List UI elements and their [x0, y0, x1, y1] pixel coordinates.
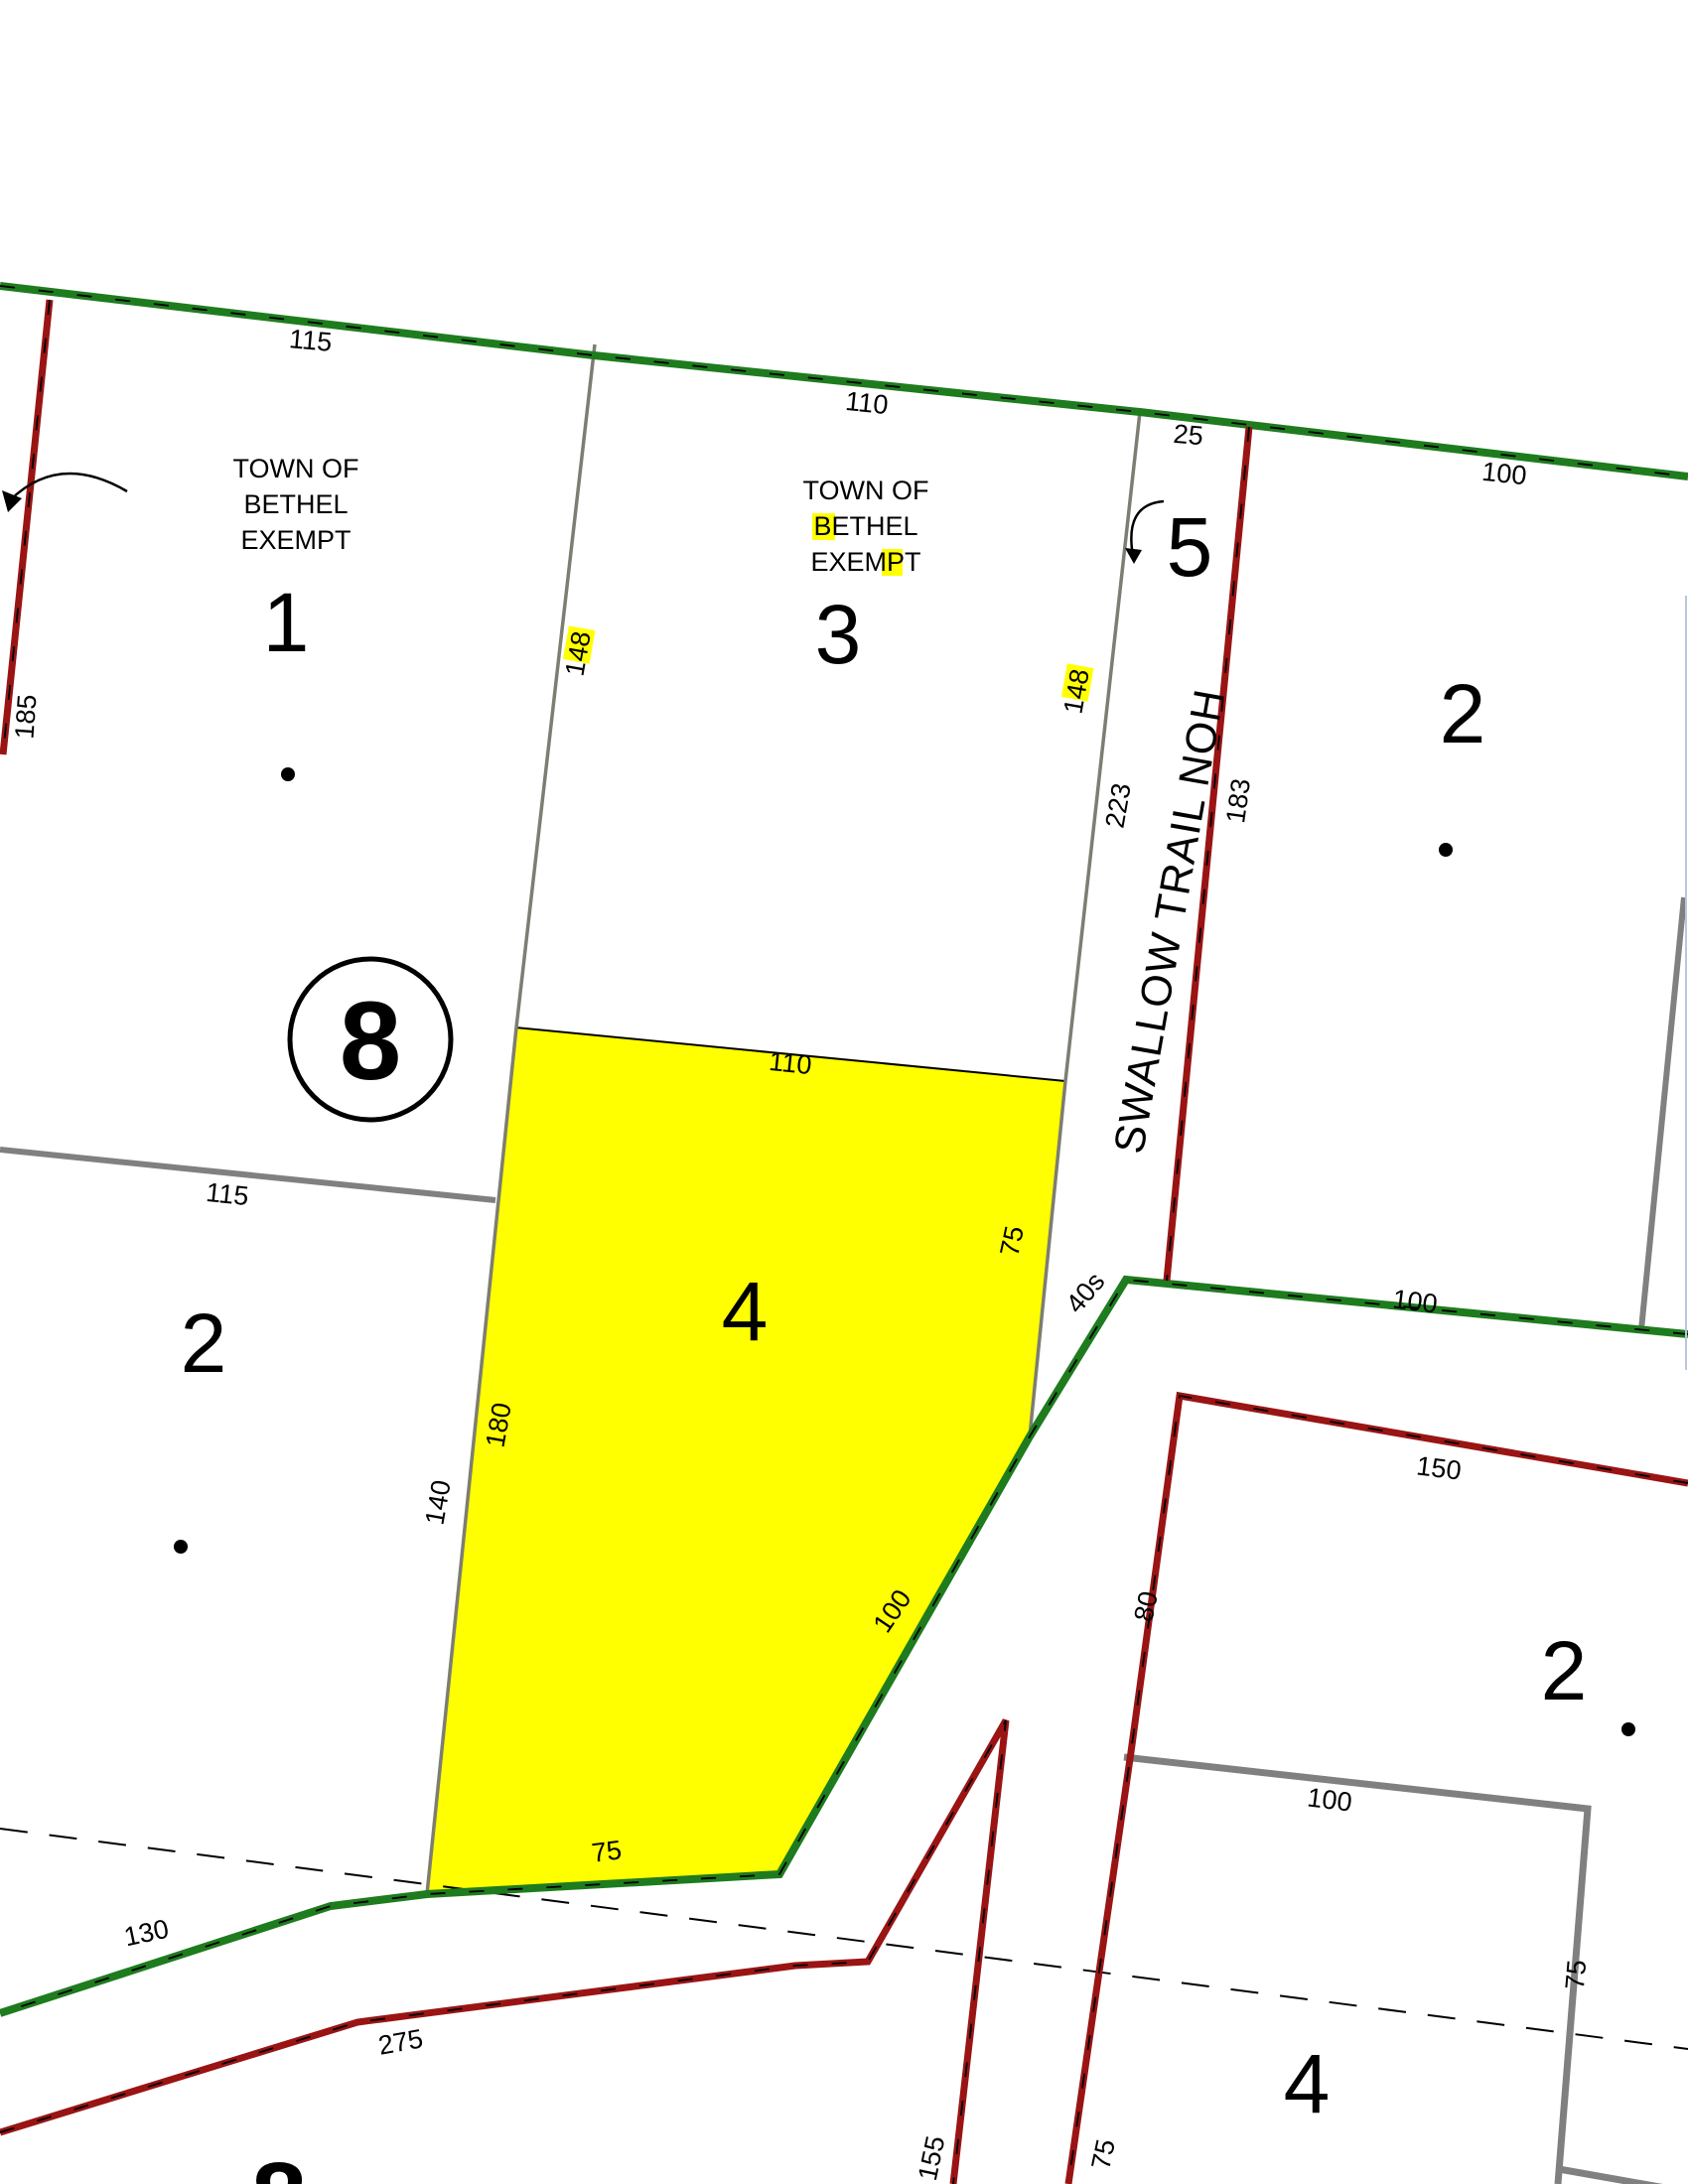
parcel-2-left-number: 2 — [181, 1297, 227, 1390]
dim-110-selected: 110 — [768, 1046, 813, 1080]
block-number: 8 — [340, 979, 401, 1103]
dim-185: 185 — [9, 693, 42, 740]
parcel-map-stage: 8 TOWN OF BETHEL EXEMPT 1 TOWN OF BETHEL… — [0, 0, 1688, 2184]
dim-183: 183 — [1220, 776, 1256, 825]
dim-80: 80 — [1128, 1588, 1164, 1624]
parcel-1-number: 1 — [263, 576, 310, 669]
parcel-2-right-number: 2 — [1541, 1624, 1588, 1717]
parcel-8-bottom-number: 8 — [251, 2142, 307, 2184]
parcel-3-owner-line2: BETHEL — [813, 511, 917, 541]
dim-75-selected-bottom: 75 — [590, 1835, 623, 1867]
parcel-map: 8 TOWN OF BETHEL EXEMPT 1 TOWN OF BETHEL… — [0, 0, 1688, 2184]
parcel-2-top-right-point — [1439, 843, 1453, 857]
parcel-4-selected-number: 4 — [722, 1265, 769, 1358]
dim-100-top-right: 100 — [1480, 457, 1528, 491]
parcel-1-point — [281, 767, 295, 781]
dim-75-selected-right: 75 — [994, 1223, 1030, 1259]
parcel-2-top-right-number: 2 — [1440, 667, 1486, 760]
parcel-1-owner-line2: BETHEL — [243, 489, 348, 519]
parcel-4-bottom-right-number: 4 — [1284, 2037, 1331, 2130]
dim-115-mid: 115 — [205, 1177, 250, 1211]
parcel-3-owner-line1: TOWN OF — [803, 476, 929, 505]
dim-25: 25 — [1173, 419, 1205, 452]
dim-75-spike: 75 — [1085, 2136, 1121, 2172]
parcel-2-left-point — [174, 1540, 188, 1554]
parcel-1-owner-line1: TOWN OF — [233, 454, 359, 483]
parcel-2-right-point — [1621, 1722, 1635, 1736]
dim-150: 150 — [1415, 1450, 1463, 1485]
dim-110-top: 110 — [844, 386, 890, 420]
parcel-1-owner-line3: EXEMPT — [240, 525, 351, 555]
parcel-3-owner-line3: EXEMPT — [810, 547, 920, 577]
parcel-5-number: 5 — [1167, 500, 1213, 594]
dim-100-road: 100 — [1391, 1284, 1439, 1318]
parcel-3-number: 3 — [815, 588, 862, 681]
dim-75-bottom-right: 75 — [1560, 1959, 1593, 1991]
dim-115-top: 115 — [288, 324, 333, 357]
dim-100-bottom-right: 100 — [1306, 1782, 1353, 1817]
